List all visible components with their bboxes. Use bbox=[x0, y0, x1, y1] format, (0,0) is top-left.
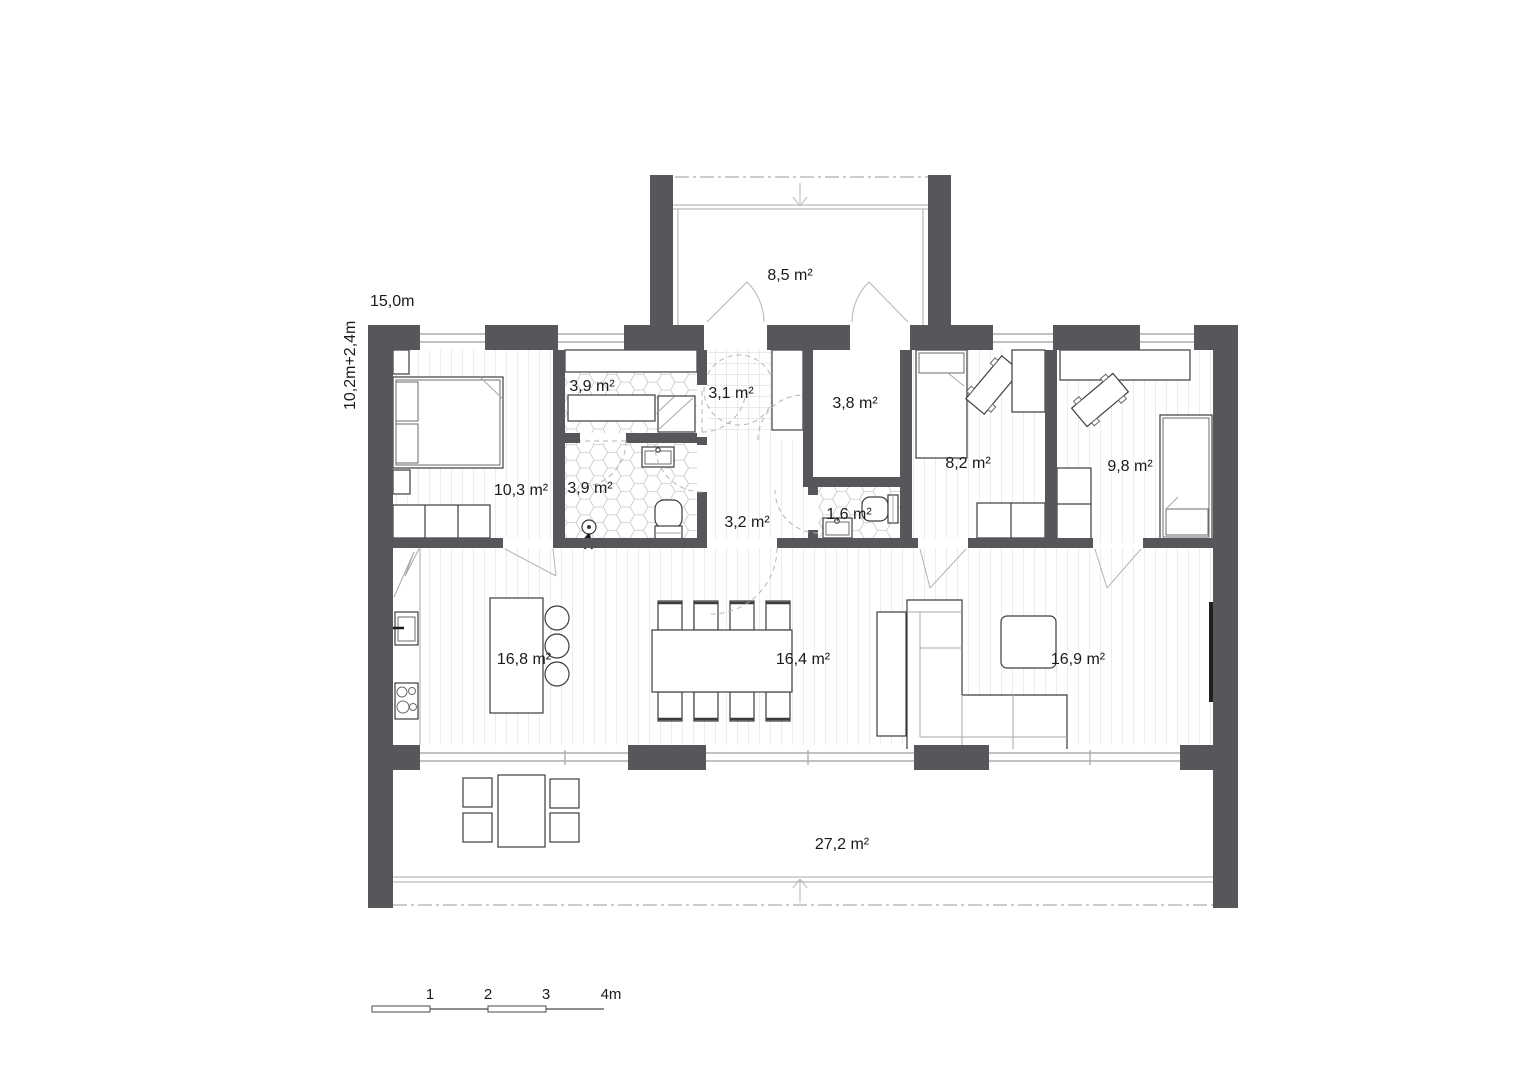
chair bbox=[694, 692, 718, 721]
label-corridor: 3,2 m² bbox=[724, 514, 770, 531]
chair bbox=[550, 779, 579, 808]
label-bedroom: 10,3 m² bbox=[494, 482, 549, 499]
floor-plan-canvas: 8,5 m² 3,9 m² 3,1 m² 3,8 m² 8,2 m² 9,8 m… bbox=[0, 0, 1536, 1086]
label-entry-hall: 3,1 m² bbox=[708, 385, 754, 402]
label-utility: 3,9 m² bbox=[569, 378, 615, 395]
scale-tick-3: 3 bbox=[542, 986, 550, 1003]
porch-annotations bbox=[650, 177, 951, 325]
window bbox=[993, 329, 1053, 346]
label-terrace: 27,2 m² bbox=[815, 836, 870, 853]
shelf bbox=[565, 350, 697, 372]
pillow bbox=[396, 382, 418, 421]
toilet-icon bbox=[655, 500, 682, 528]
label-kids-1: 8,2 m² bbox=[945, 455, 991, 472]
window bbox=[420, 329, 485, 346]
label-bathroom: 3,9 m² bbox=[567, 480, 613, 497]
chair bbox=[766, 601, 790, 630]
nightstand bbox=[393, 350, 409, 374]
outdoor-table bbox=[498, 775, 545, 847]
window bbox=[558, 329, 624, 346]
counter bbox=[568, 395, 655, 421]
sideboard bbox=[877, 612, 906, 736]
bar-stool bbox=[545, 606, 569, 630]
chair bbox=[463, 778, 492, 807]
chair bbox=[766, 692, 790, 721]
storage-door bbox=[850, 282, 910, 346]
terrace-annotations bbox=[368, 877, 1238, 905]
label-storage: 3,8 m² bbox=[832, 395, 878, 412]
wardrobe bbox=[1012, 350, 1045, 412]
tap-icon bbox=[656, 448, 660, 452]
chair bbox=[658, 692, 682, 721]
window bbox=[1140, 329, 1194, 346]
label-dining: 16,4 m² bbox=[776, 651, 831, 668]
nightstand bbox=[393, 470, 410, 494]
chair bbox=[463, 813, 492, 842]
dresser bbox=[393, 505, 490, 538]
label-wc: 1,6 m² bbox=[826, 506, 872, 523]
chair bbox=[730, 692, 754, 721]
hall-closet bbox=[772, 350, 803, 430]
porch-pillar bbox=[928, 175, 951, 327]
terrace-furniture bbox=[463, 775, 579, 847]
width-dimension: 15,0m bbox=[370, 293, 414, 310]
porch-pillar bbox=[650, 175, 673, 327]
scale-bar: 1 2 3 4m bbox=[372, 986, 621, 1012]
scale-tick-1: 1 bbox=[426, 986, 434, 1003]
chair bbox=[658, 601, 682, 630]
sliding-glass-wall bbox=[420, 749, 1180, 766]
depth-dimension: 10,2m+2,4m bbox=[342, 321, 359, 410]
pillow bbox=[1166, 509, 1208, 535]
entrance-arrow-icon bbox=[793, 183, 807, 206]
floor-plan: 8,5 m² 3,9 m² 3,1 m² 3,8 m² 8,2 m² 9,8 m… bbox=[0, 0, 1536, 1086]
label-porch: 8,5 m² bbox=[767, 267, 813, 284]
chair bbox=[694, 601, 718, 630]
terrace-arrow-icon bbox=[793, 879, 807, 903]
scale-segment bbox=[372, 1006, 430, 1012]
pillow bbox=[919, 353, 964, 373]
scale-tick-2: 2 bbox=[484, 986, 492, 1003]
master-bedroom-furniture bbox=[393, 350, 503, 538]
scale-segment bbox=[488, 1006, 546, 1012]
dining-table bbox=[652, 630, 792, 692]
label-living: 16,9 m² bbox=[1051, 651, 1106, 668]
chair bbox=[550, 813, 579, 842]
coffee-table bbox=[1001, 616, 1056, 668]
pillow bbox=[396, 424, 418, 463]
scale-tick-4: 4m bbox=[601, 986, 622, 1003]
desk bbox=[1060, 350, 1190, 380]
chair bbox=[730, 601, 754, 630]
label-kitchen: 16,8 m² bbox=[497, 651, 552, 668]
front-door bbox=[704, 282, 767, 346]
label-kids-2: 9,8 m² bbox=[1107, 458, 1153, 475]
